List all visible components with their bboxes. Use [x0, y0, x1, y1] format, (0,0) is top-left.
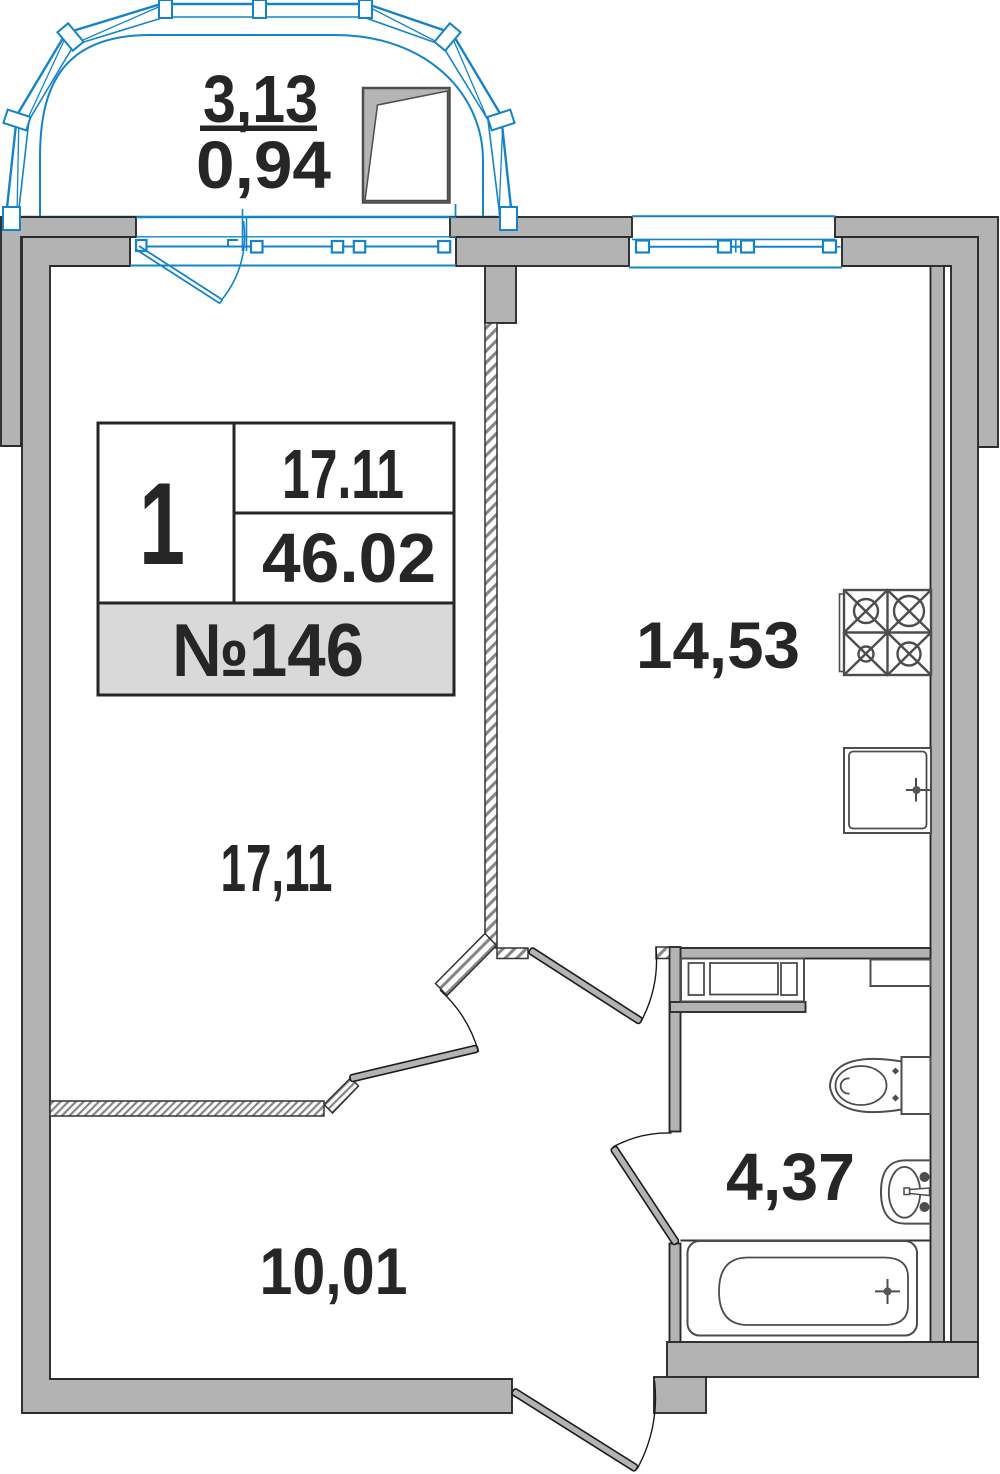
svg-text:№146: №146	[172, 608, 364, 692]
svg-text:17,11: 17,11	[221, 831, 333, 906]
svg-text:10,01: 10,01	[260, 1234, 408, 1308]
svg-text:4,37: 4,37	[726, 1140, 855, 1215]
svg-text:1: 1	[139, 458, 185, 589]
svg-text:14,53: 14,53	[636, 608, 800, 682]
svg-text:0,94: 0,94	[196, 128, 331, 203]
svg-text:17.11: 17.11	[282, 435, 404, 513]
svg-text:46.02: 46.02	[262, 519, 436, 597]
